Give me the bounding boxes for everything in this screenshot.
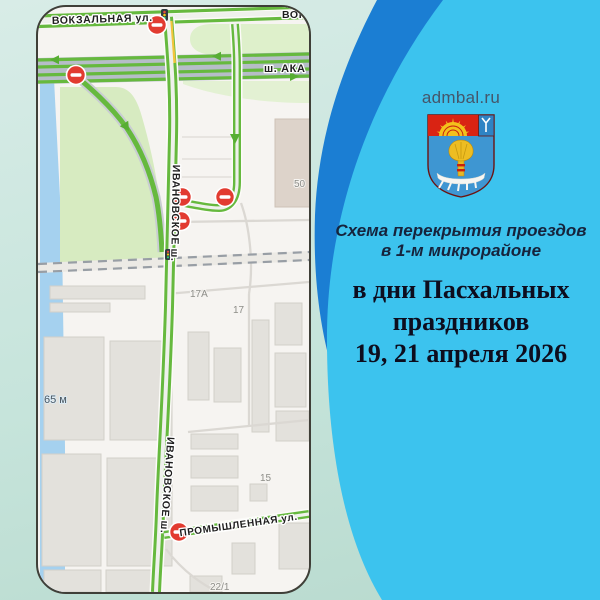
site-domain: admbal.ru [422, 88, 500, 108]
no-entry-icon [67, 66, 86, 85]
building-label-50: 50 [294, 179, 306, 190]
poster-title-line1: Схема перекрытия проездов [335, 221, 586, 241]
street-label-akademika: ш. АКА [264, 63, 305, 75]
poster-dates-line1: в дни Пасхальных [352, 274, 569, 306]
poster-dates-line3: 19, 21 апреля 2026 [352, 338, 569, 370]
road-closure-map: ВОКЗАЛЬНАЯ ул. ВОК ш. АКА ИВАНОВСКОЕ ш. … [36, 5, 311, 594]
poster-dates-line2: праздников [352, 306, 569, 338]
street-label-ivanovskoe-1: ИВАНОВСКОЕ ш. [168, 165, 182, 262]
poster: ВОКЗАЛЬНАЯ ул. ВОК ш. АКА ИВАНОВСКОЕ ш. … [0, 0, 600, 600]
info-panel: admbal.ru [326, 0, 596, 600]
poster-title: Схема перекрытия проездов в 1-м микрорай… [335, 221, 586, 261]
coat-of-arms [425, 113, 497, 199]
poster-dates: в дни Пасхальных праздников 19, 21 апрел… [352, 274, 569, 370]
building-label-22-1: 22/1 [210, 582, 230, 592]
scale-label: 65 м [44, 394, 67, 406]
building-label-17: 17 [233, 305, 245, 316]
map-canvas: ВОКЗАЛЬНАЯ ул. ВОК ш. АКА ИВАНОВСКОЕ ш. … [38, 7, 309, 592]
poster-title-line2: в 1-м микрорайоне [335, 241, 586, 261]
canton [479, 115, 495, 136]
building-label-17a: 17А [190, 289, 208, 300]
green-area-below-highway [183, 81, 309, 103]
green-area-top-right [190, 24, 309, 55]
no-entry-icon [216, 188, 235, 207]
parking-lines [182, 137, 234, 177]
building-label-15: 15 [260, 473, 272, 484]
